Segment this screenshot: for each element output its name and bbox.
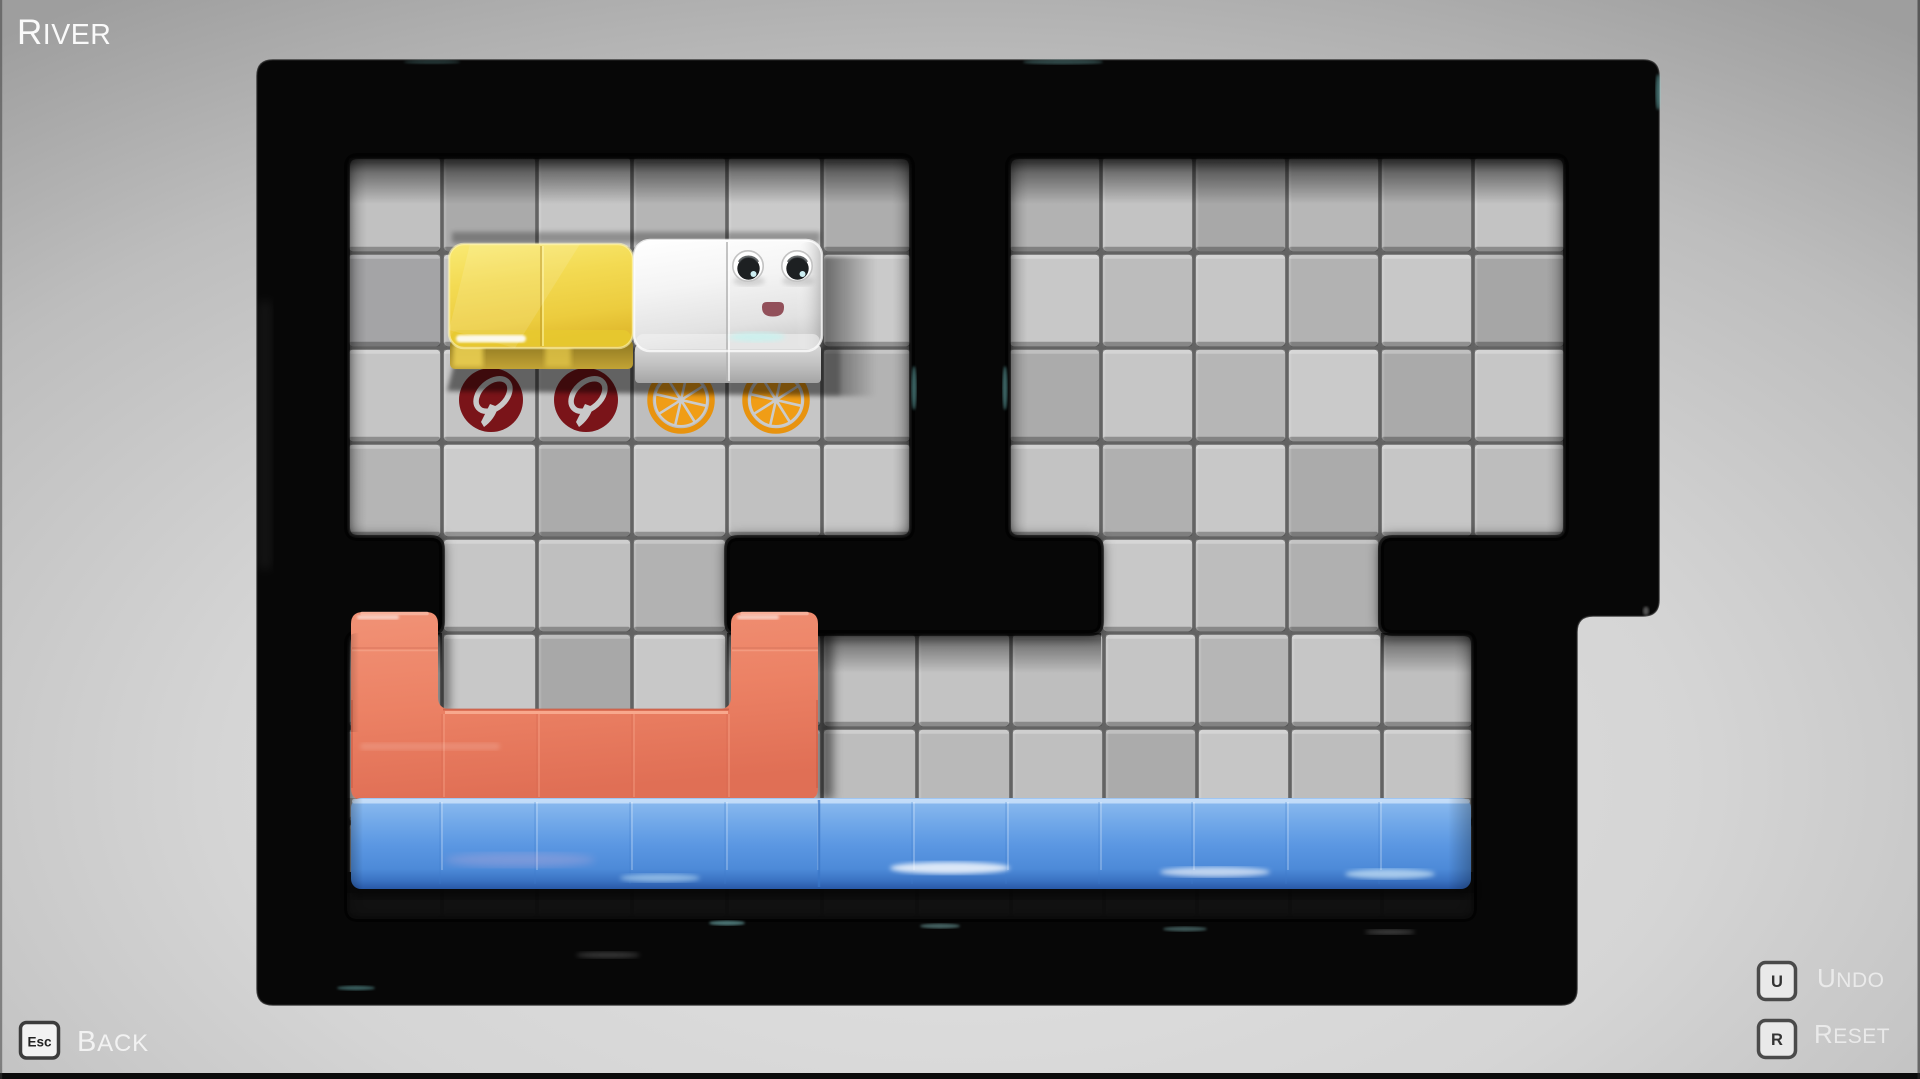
svg-text:U: U [1771, 973, 1783, 991]
svg-text:RIVER: RIVER [17, 13, 111, 52]
svg-text:BACK: BACK [77, 1026, 149, 1058]
svg-text:Esc: Esc [27, 1035, 52, 1050]
svg-text:R: R [1771, 1031, 1783, 1049]
